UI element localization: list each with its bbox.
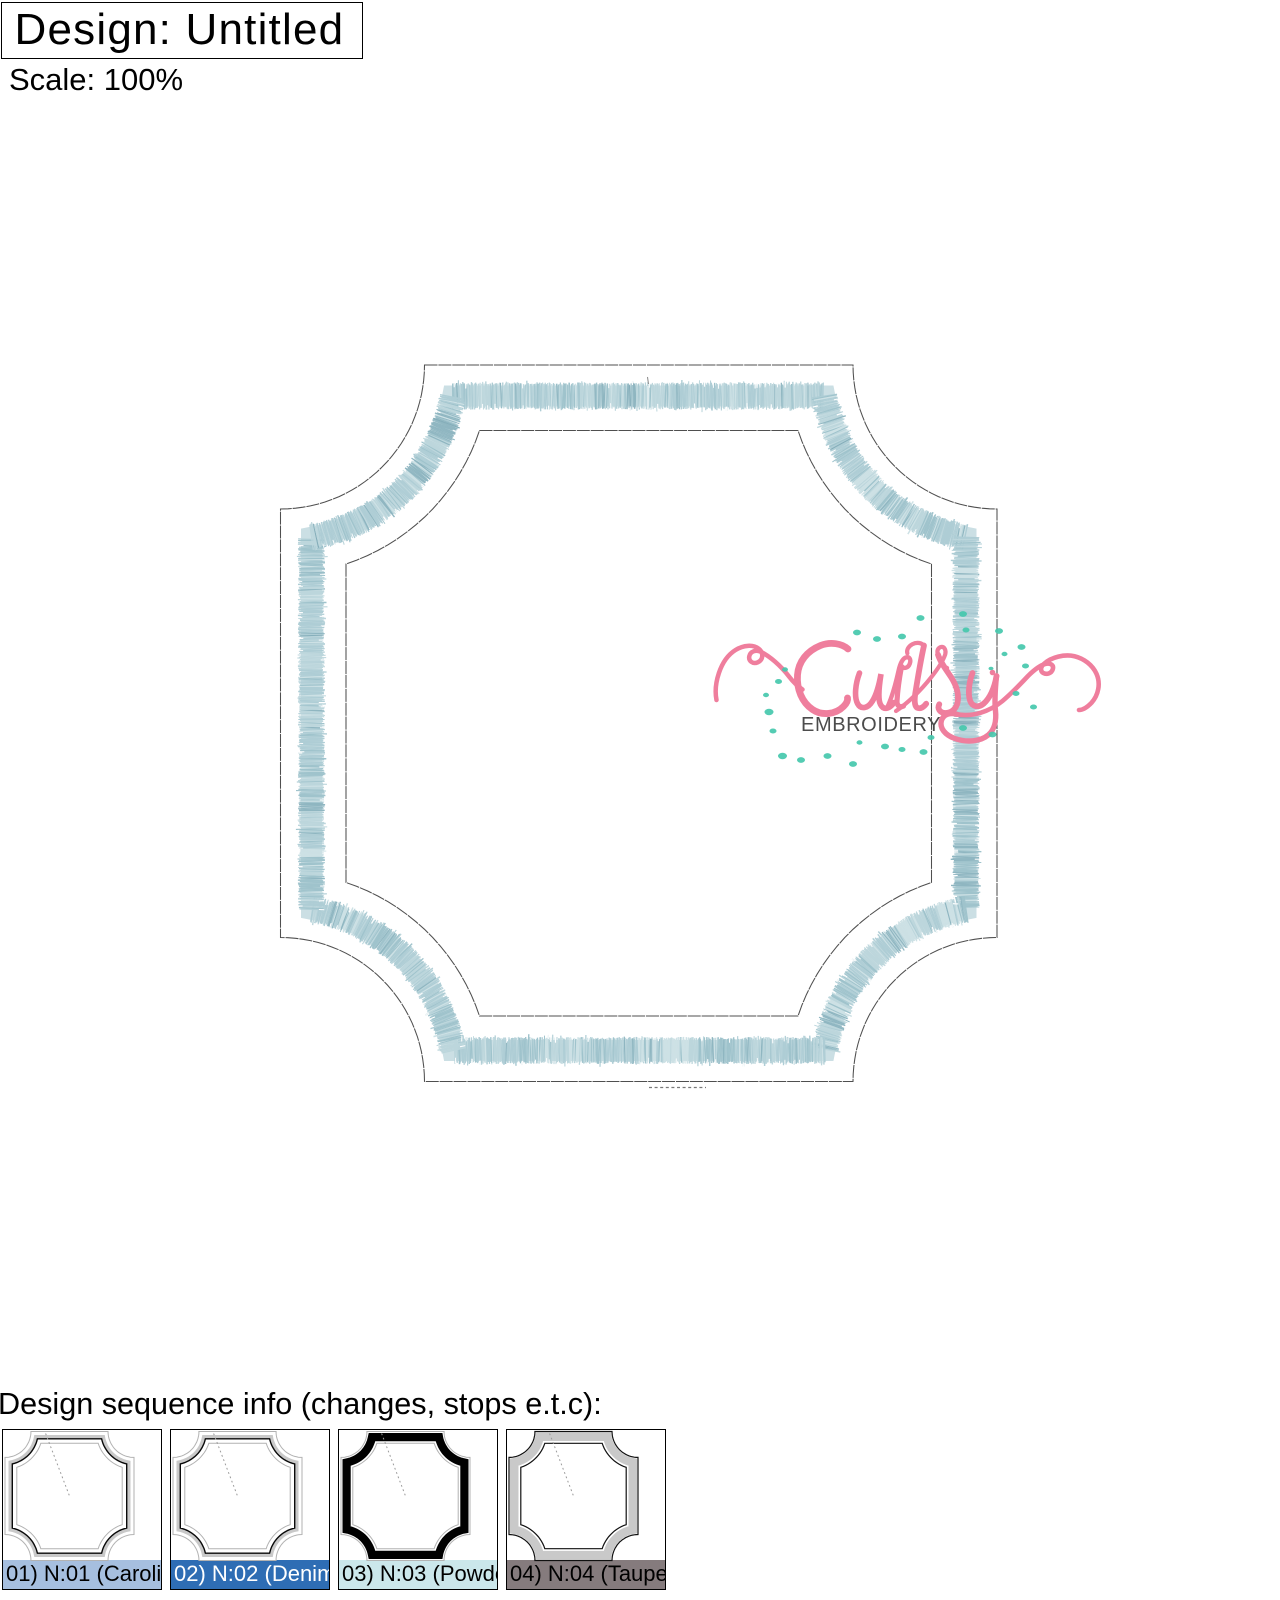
svg-text:EMBROIDERY: EMBROIDERY: [801, 714, 941, 736]
